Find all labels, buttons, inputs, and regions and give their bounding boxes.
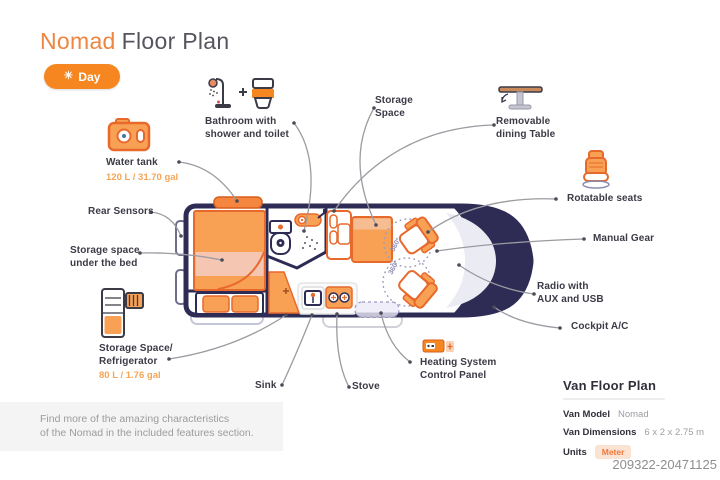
- dinette-table: [327, 211, 351, 259]
- spec-panel-title: Van Floor Plan: [563, 378, 718, 393]
- label-radio: Radio with AUX and USB: [537, 281, 604, 306]
- watermark-id: 209322-20471125: [612, 457, 717, 472]
- label-under-bed: Storage space under the bed: [70, 245, 140, 270]
- bed: [194, 211, 265, 290]
- day-mode-toggle[interactable]: ☀ Day: [44, 64, 120, 89]
- day-mode-label: Day: [78, 70, 100, 84]
- rotatable-seat-icon: [581, 149, 611, 189]
- sink-fixture: [302, 287, 324, 309]
- stove-fixture: [326, 287, 352, 308]
- floor-plan-page: 360° 360°: [0, 0, 720, 480]
- label-manual-gear: Manual Gear: [593, 233, 654, 246]
- dining-table-icon: [496, 82, 544, 112]
- label-rear-sensors: Rear Sensors: [88, 206, 154, 219]
- label-dining-table: Removable dining Table: [496, 82, 555, 141]
- label-rotatable-seats: Rotatable seats: [567, 149, 642, 206]
- label-heating: Heating System Control Panel: [420, 338, 496, 382]
- toilet-fixture: [270, 221, 291, 254]
- spec-panel: Van Floor Plan Van Model Nomad Van Dimen…: [563, 378, 718, 466]
- label-water-tank: Water tank 120 L / 31.70 gal: [106, 117, 178, 184]
- page-title: NomadFloor Plan: [40, 28, 229, 55]
- label-sink: Sink: [255, 380, 277, 393]
- storage-box: [352, 217, 392, 262]
- label-stove: Stove: [352, 381, 380, 394]
- heating-panel-icon: [422, 338, 454, 354]
- bathroom-icon: [205, 76, 277, 112]
- heating-panel-area: [355, 302, 399, 317]
- van-water-tank-location: [214, 197, 262, 208]
- spec-row-dimensions: Van Dimensions 6 x 2 x 2.75 m: [563, 427, 718, 438]
- label-storage-space: Storage Space: [375, 95, 413, 120]
- water-tank-icon: [106, 117, 152, 153]
- fridge-icon: [99, 285, 145, 339]
- spec-row-model: Van Model Nomad: [563, 409, 718, 420]
- under-bed-storage: [196, 293, 263, 314]
- page-title-rest: Floor Plan: [122, 28, 230, 54]
- page-title-brand: Nomad: [40, 28, 116, 54]
- note-box: Find more of the amazing characteristics…: [0, 402, 283, 451]
- note-text: Find more of the amazing characteristics…: [40, 412, 254, 440]
- sun-icon: ☀: [64, 71, 74, 82]
- spec-divider: [563, 398, 665, 400]
- label-bathroom: Bathroom with shower and toilet: [205, 76, 289, 141]
- label-cockpit-ac: Cockpit A/C: [571, 321, 628, 334]
- label-fridge: Storage Space/ Refrigerator 80 L / 1.76 …: [99, 285, 173, 383]
